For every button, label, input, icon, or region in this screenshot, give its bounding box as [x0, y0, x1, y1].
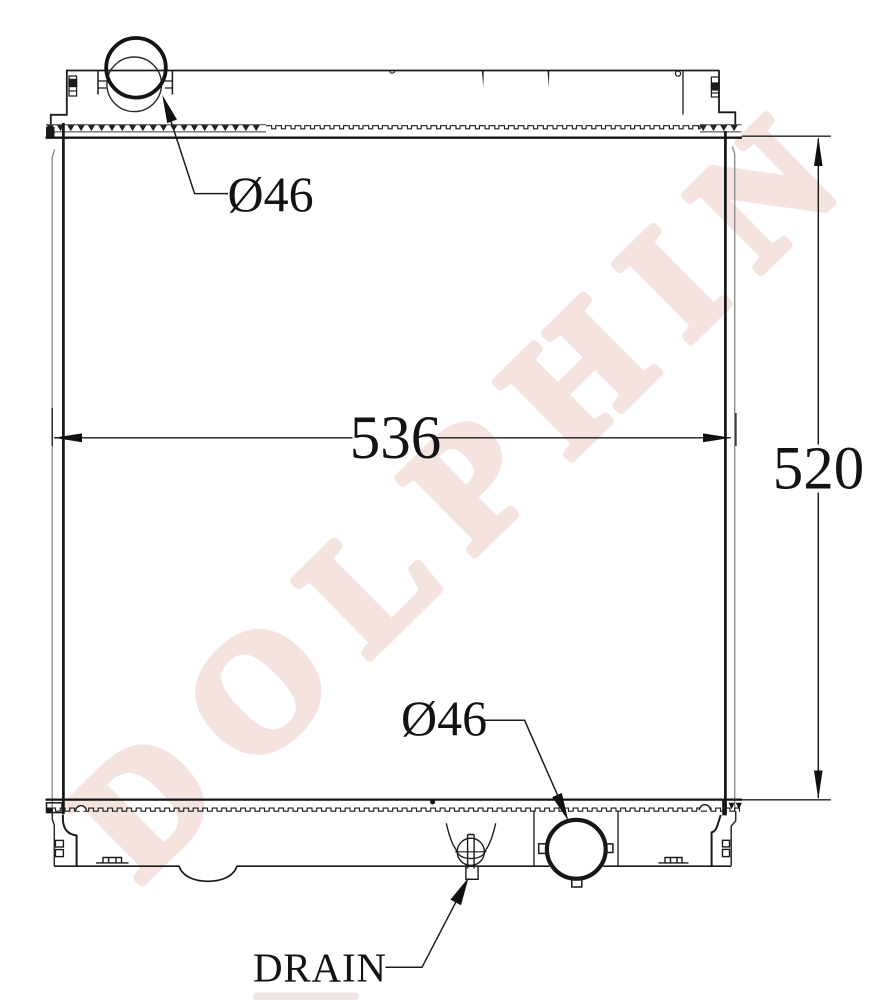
svg-text:Ø46: Ø46: [401, 690, 487, 746]
svg-text:DRAIN: DRAIN: [253, 945, 387, 991]
svg-text:520: 520: [773, 436, 865, 503]
svg-text:Ø46: Ø46: [228, 166, 314, 222]
svg-text:536: 536: [350, 405, 442, 472]
